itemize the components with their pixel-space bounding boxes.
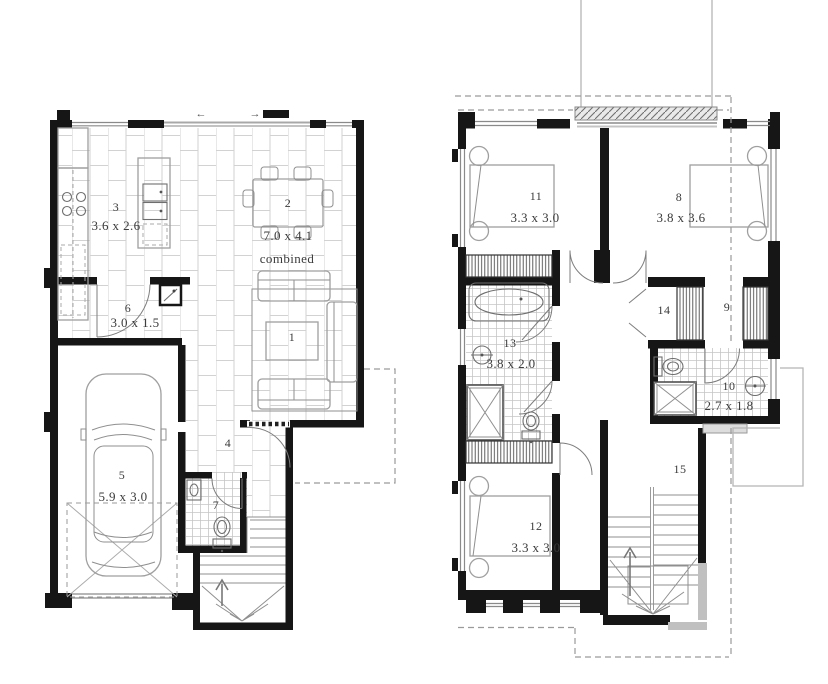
room-label-stairs15: 15 <box>674 462 687 476</box>
upper-floor-plan: 8 3.8 x 3.6 9 10 2.7 x 1.8 11 3.3 x 3.0 … <box>452 0 803 657</box>
room-note-combined: combined <box>260 251 315 266</box>
ensuite-shower-symbol <box>654 382 696 415</box>
balcony-hatch <box>575 107 717 120</box>
bed-symbol-8 <box>690 147 768 241</box>
room-label-kitchen: 3 <box>113 200 120 214</box>
room-label-garage: 5 <box>119 468 126 482</box>
room-dims-bath13: 3.8 x 2.0 <box>486 356 535 371</box>
room-dims-entry: 3.0 x 1.5 <box>110 315 159 330</box>
linen-bifold-doors <box>629 289 646 337</box>
room-label-linen14: 14 <box>658 303 671 317</box>
room-dims-bed12: 3.3 x 3.0 <box>511 540 560 555</box>
slide-left-arrow-icon: ← <box>196 108 207 120</box>
room-dims-kitchen: 3.6 x 2.6 <box>91 218 140 233</box>
stairs-up-arrow-icon <box>216 580 228 606</box>
meter-box <box>160 285 181 305</box>
room-label-dining: 2 <box>285 196 292 210</box>
room-label-hall9: 9 <box>724 300 731 314</box>
room-dims-dining: 7.0 x 4.1 <box>263 228 312 243</box>
room-dims-bed11: 3.3 x 3.0 <box>510 210 559 225</box>
room-label-ensuite10: 10 <box>723 379 736 393</box>
room-label-bed11: 11 <box>530 189 543 203</box>
staircase-symbol-upper <box>608 487 707 630</box>
bath-shower-symbol <box>467 385 503 440</box>
room-label-bath13: 13 <box>504 336 517 350</box>
ground-floor-plan: ← → <box>44 108 395 630</box>
room-label-living: 1 <box>289 330 296 344</box>
room-dims-ensuite10: 2.7 x 1.8 <box>704 398 753 413</box>
room-label-entry: 6 <box>125 301 132 315</box>
slide-right-arrow-icon: → <box>250 108 261 120</box>
room-dims-garage: 5.9 x 3.0 <box>98 489 147 504</box>
room-label-hall: 4 <box>225 436 232 450</box>
room-label-wc: 7 <box>213 498 220 512</box>
floor-plan-canvas: ← → <box>0 0 828 684</box>
room-label-bed8: 8 <box>676 190 683 204</box>
room-label-bed12: 12 <box>530 519 543 533</box>
floor-plan-drawing: ← → <box>0 0 828 684</box>
balcony-outline <box>455 0 731 128</box>
room-dims-bed8: 3.8 x 3.6 <box>656 210 705 225</box>
stairs-up-arrow-icon-upper <box>624 548 636 596</box>
